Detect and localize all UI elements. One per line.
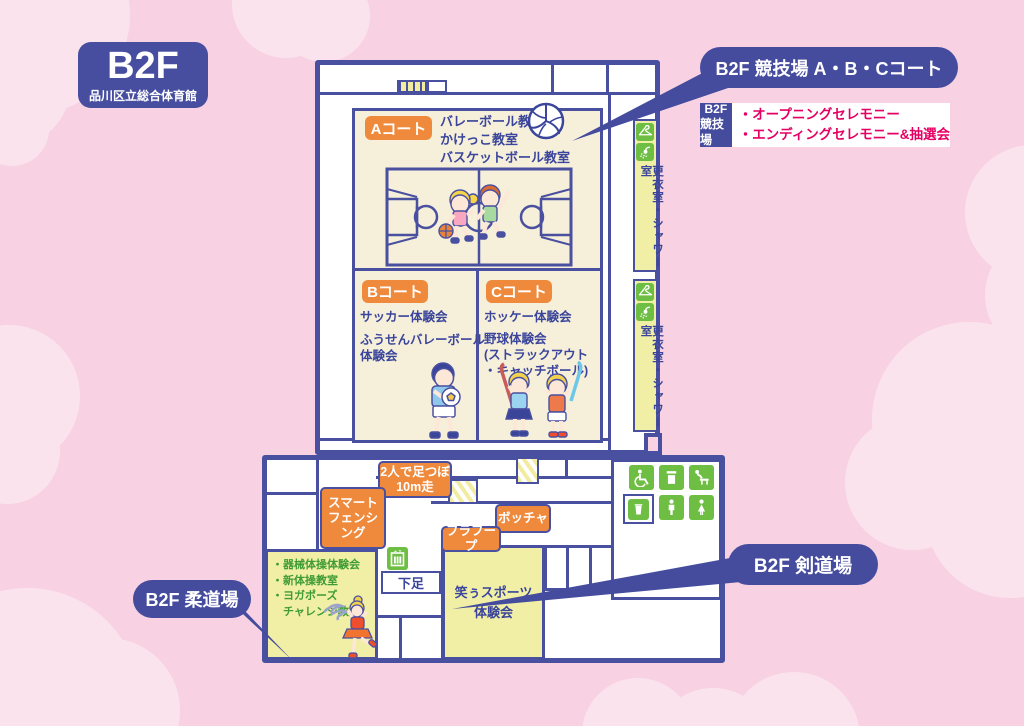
stairs-top-band [397,80,427,93]
gymnast-illustration [320,592,378,665]
smart-fencing-line-2: フェンシング [322,511,384,541]
court-b-tag: Bコート [362,280,428,303]
womens-restroom-icon [689,495,714,520]
warau-sports-line-1: 笑ぅスポーツ [455,583,533,603]
judo-callout-label: B2F 柔道場 [145,586,238,612]
stairs-top-band-landing [427,80,447,93]
smart-fencing-box: スマート フェンシング [320,487,386,549]
lower-wall-left-col [316,458,319,550]
judo-callout: B2F 柔道場 [133,580,251,618]
small-rooms-div-2 [589,547,592,589]
court-c-line-2: 野球体験会 [484,331,588,347]
hanger-icon [636,283,654,301]
judo-room-line-2: ・新体操教室 [272,574,360,590]
volleyball-icon [526,101,566,146]
arena-band-divider-2 [606,64,609,93]
court-a-tag-label: Aコート [371,118,427,139]
foot-race-line-1: 2人で足つぼ [380,465,449,480]
foot-race-box: 2人で足つぼ 10m走 [378,461,452,498]
judo-room: ・器械体操体験会 ・新体操教室 ・ヨガポーズ チャレンジ教室 [265,549,378,660]
court-b-line-1: サッカー体験会 [360,309,485,326]
stairs-lower-1 [516,457,539,484]
baby-change-icon [689,465,714,490]
boccia-label: ボッチャ [498,511,548,526]
smart-fencing-line-1: スマート [328,496,378,511]
arena-band-divider-1 [551,64,554,93]
event-room-line-2: 競技場 [700,117,732,148]
trash-bin-icon [628,499,649,520]
event-room-line-1: B2F [705,102,728,118]
shower-icon [636,303,654,321]
court-c-line-1: ホッケー体験会 [484,309,588,325]
floor-map-b2f: B2F 品川区立総合体育館 更衣室・シャワー室 更衣室・シャワー室 [0,0,1024,726]
changing-room-label-lower: 更衣室・シャワー室 [639,325,662,430]
arena-pink-notch [644,433,662,455]
changing-room-label-upper: 更衣室・シャワー室 [639,165,662,270]
small-rooms-row [544,545,614,591]
basketball-court-illustration [385,167,573,272]
facility-name: 品川区立総合体育館 [89,87,197,104]
court-a-tag: Aコート [365,116,432,140]
mens-restroom-icon [659,495,684,520]
warau-sports-line-2: 体験会 [474,603,513,623]
court-b-tag-label: Bコート [367,281,423,302]
judo-room-line-1: ・器械体操体験会 [272,558,360,574]
kendo-callout: B2F 剣道場 [728,544,878,585]
court-c-tag-label: Cコート [491,281,547,302]
event-items: ・オープニングセレモニー ・エンディングセレモニー&抽選会 [732,103,950,147]
changing-room-upper: 更衣室・シャワー室 [633,119,658,272]
trash-bin-box [623,494,654,524]
hanger-icon [636,123,654,141]
shower-icon [636,143,654,161]
kids-hockey-illustration [492,358,588,447]
stairs-lower-2 [448,479,478,504]
lower-wall-top-v2 [565,458,568,479]
court-b-line-2: ふうせんバレーボール [360,332,485,349]
hula-hoop-box: フラフープ [441,526,501,552]
court-a-line-3: バスケットボール教室 [440,149,570,167]
elevator-icon [387,547,408,570]
changing-room-lower: 更衣室・シャワー室 [633,279,658,432]
foot-race-line-2: 10m走 [396,480,434,495]
arena-callout: B2F 競技場 A・B・Cコート [700,47,958,88]
lower-wall-bottom-v [399,615,402,660]
arena-top-band-line [320,92,655,95]
court-c-tag: Cコート [486,280,552,303]
dust-box-icon [659,465,684,490]
court-b-programs: サッカー体験会 ふうせんバレーボール 体験会 [360,309,485,365]
warau-sports-room: 笑ぅスポーツ 体験会 [442,545,545,660]
small-rooms-div-1 [566,547,569,589]
event-room-name: B2F 競技場 [700,103,732,147]
floor-logo-text: B2F [107,47,179,85]
lower-wall-bottom-h [378,615,444,618]
arena-callout-label: B2F 競技場 A・B・Cコート [715,55,942,81]
kendo-callout-label: B2F 剣道場 [754,551,852,578]
shoes-label: 下足 [398,573,424,592]
boccia-box: ボッチャ [495,504,551,533]
wheelchair-icon [629,465,654,490]
arena-corridor-wall [608,92,611,451]
floor-logo: B2F 品川区立総合体育館 [78,42,208,108]
shoes-box: 下足 [381,571,441,594]
hula-hoop-label: フラフープ [443,524,499,554]
event-item-2: ・エンディングセレモニー&抽選会 [739,125,950,145]
event-info-box: B2F 競技場 ・オープニングセレモニー ・エンディングセレモニー&抽選会 [700,103,950,147]
event-item-1: ・オープニングセレモニー [739,105,950,125]
kid-soccer-illustration [418,360,470,447]
lower-wall-left-h [265,492,318,495]
